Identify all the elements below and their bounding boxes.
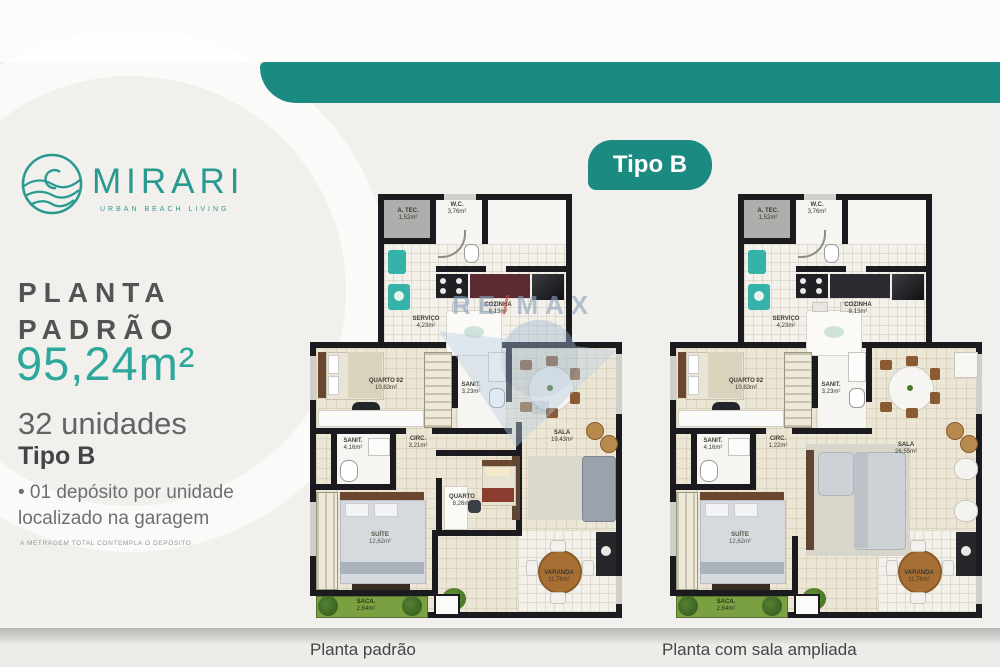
- stool: [812, 302, 828, 312]
- armchair: [954, 500, 978, 522]
- room-label-suite: SUÍTE12,62m²: [354, 532, 406, 546]
- washer-door: [754, 291, 764, 301]
- washer-door: [394, 291, 404, 301]
- units-count: 32 unidades: [18, 406, 187, 442]
- desk: [678, 410, 784, 427]
- room-label-sacada: SACA.2,64m²: [704, 599, 748, 613]
- floorplan-ampliada: A. TEC.1,52m² W.C.3,76m² SERVIÇO4,23m² C…: [666, 194, 1000, 632]
- wall: [310, 342, 446, 348]
- room-label-sanit2: SANIT.4,16m²: [696, 438, 730, 452]
- bed-headboard: [340, 492, 424, 500]
- armchair: [954, 458, 978, 480]
- chair: [906, 408, 918, 418]
- brand-tagline: URBAN BEACH LIVING: [100, 206, 229, 213]
- centerpiece: [907, 385, 913, 391]
- table-platter: [824, 326, 844, 338]
- kitchen-counter: [830, 274, 890, 298]
- plant: [402, 596, 422, 616]
- desk: [318, 410, 424, 427]
- vanity: [728, 438, 750, 456]
- wall: [738, 238, 796, 244]
- bbq-sink: [961, 546, 971, 556]
- tipo-b-badge-label: Tipo B: [613, 151, 687, 179]
- watermark-re: RE: [452, 290, 502, 320]
- room-label-atec: A. TEC.1,52m²: [742, 208, 794, 222]
- window: [616, 576, 622, 604]
- wall: [926, 194, 932, 348]
- burner: [800, 288, 806, 294]
- chair: [910, 592, 926, 604]
- wall: [750, 434, 756, 490]
- window: [804, 194, 836, 200]
- wall: [390, 434, 396, 490]
- burner: [800, 278, 806, 284]
- wall: [842, 194, 848, 244]
- wall: [866, 342, 872, 402]
- pillow: [345, 503, 369, 517]
- pillow: [486, 468, 510, 476]
- bed-runner: [700, 562, 784, 574]
- wall: [812, 348, 818, 408]
- burner: [816, 278, 822, 284]
- wall: [506, 266, 566, 272]
- teal-header-band: [260, 62, 1000, 103]
- window: [444, 194, 476, 200]
- burner: [816, 288, 822, 294]
- bed-bench: [712, 584, 770, 590]
- deposit-note-line1: • 01 depósito por unidade: [18, 482, 234, 503]
- wall: [926, 342, 982, 348]
- door-step: [434, 594, 460, 616]
- wall: [796, 266, 846, 272]
- bed-runner: [340, 562, 424, 574]
- sofa-chaise: [818, 452, 854, 496]
- remax-balloon-watermark: [438, 316, 633, 451]
- bed-bench: [352, 584, 410, 590]
- chair: [880, 402, 892, 412]
- pillow: [328, 376, 339, 395]
- plant: [318, 596, 338, 616]
- bed-blanket: [482, 488, 514, 502]
- room-label-varanda: VARANDA11,76m²: [894, 570, 944, 584]
- window: [670, 356, 676, 400]
- pillow: [374, 503, 398, 517]
- vanity: [368, 438, 390, 456]
- wall: [432, 536, 438, 596]
- bed-headboard: [678, 352, 686, 398]
- sideboard: [954, 352, 978, 378]
- burner: [440, 288, 446, 294]
- wall: [670, 484, 756, 490]
- door-step: [794, 594, 820, 616]
- toilet: [849, 388, 865, 408]
- chair: [880, 360, 892, 370]
- mirari-logo-icon: [20, 152, 84, 216]
- panel-title-line1: PLANTA: [18, 277, 171, 308]
- window: [976, 576, 982, 604]
- laundry-sink: [388, 250, 406, 274]
- wall: [432, 530, 522, 536]
- wardrobe: [316, 492, 338, 590]
- wall: [436, 266, 486, 272]
- chair: [930, 368, 940, 380]
- chair: [910, 540, 926, 552]
- wall: [378, 238, 436, 244]
- chair: [930, 392, 940, 404]
- vanity: [848, 352, 866, 382]
- room-label-servico: SERVIÇO4,23m²: [758, 316, 814, 330]
- wall: [482, 194, 488, 244]
- chair: [550, 540, 566, 552]
- room-label-varanda: VARANDA11,76m²: [534, 570, 584, 584]
- sofa-back: [854, 452, 868, 548]
- room-label-circ: CIRC.3,21m²: [398, 436, 438, 450]
- caption-planta-padrao: Planta padrão: [310, 640, 416, 660]
- wall: [436, 478, 442, 536]
- window: [310, 356, 316, 400]
- wall: [310, 484, 396, 490]
- pouf: [960, 435, 978, 453]
- wall: [670, 342, 806, 348]
- wardrobe: [784, 352, 812, 428]
- burner: [440, 278, 446, 284]
- deposit-note: • 01 depósito por unidade localizado na …: [18, 480, 234, 531]
- pillow: [705, 503, 729, 517]
- toilet: [464, 244, 479, 263]
- pillow: [688, 355, 699, 374]
- tipo-b-badge: Tipo B: [588, 140, 712, 190]
- room-label-quarto02: QUARTO 0210,63m²: [354, 378, 418, 392]
- bed-headboard: [318, 352, 326, 398]
- wood-panel: [806, 450, 814, 550]
- room-label-sacada: SACA.2,64m²: [344, 599, 388, 613]
- room-label-quarto: QUARTO8,26m²: [444, 494, 480, 508]
- pillow: [328, 355, 339, 374]
- plant: [762, 596, 782, 616]
- deposit-note-line2: localizado na garagem: [18, 508, 209, 529]
- laundry-sink: [748, 250, 766, 274]
- pillow: [688, 376, 699, 395]
- burner: [456, 278, 462, 284]
- room-label-circ: CIRC.1,22m²: [758, 436, 798, 450]
- wardrobe: [676, 492, 698, 590]
- waves-circle-icon: [20, 152, 84, 216]
- watermark-slash: /: [502, 290, 516, 320]
- chair: [550, 592, 566, 604]
- toilet: [700, 460, 718, 482]
- room-label-wc: W.C.3,76m²: [794, 202, 840, 216]
- watermark-max: MAX: [516, 290, 595, 320]
- brand-name: MIRARI: [92, 162, 245, 202]
- total-area-value: 95,24m²: [16, 336, 195, 391]
- caption-planta-ampliada: Planta com sala ampliada: [662, 640, 857, 660]
- wall: [866, 266, 926, 272]
- chair: [906, 356, 918, 366]
- fridge: [892, 274, 924, 300]
- pillow: [734, 503, 758, 517]
- wall: [792, 428, 872, 434]
- footnote: A METRAGEM TOTAL CONTEMPLA O DEPÓSITO: [20, 540, 191, 547]
- room-label-sala: SALA26,55m²: [882, 442, 930, 456]
- plant: [678, 596, 698, 616]
- room-label-sanit1: SANIT.3,23m²: [816, 382, 846, 396]
- room-label-quarto02: QUARTO 0210,63m²: [714, 378, 778, 392]
- toilet: [340, 460, 358, 482]
- sofa: [582, 456, 616, 522]
- room-label-sanit2: SANIT.4,16m²: [336, 438, 370, 452]
- type-label: Tipo B: [18, 442, 95, 471]
- bbq-sink: [601, 546, 611, 556]
- room-label-cozinha: COZINHA8,13m²: [828, 302, 888, 316]
- wall: [792, 536, 798, 596]
- remax-watermark: RE/MAX: [452, 290, 595, 321]
- bed-headboard: [700, 492, 784, 500]
- room-label-atec: A. TEC.1,52m²: [382, 208, 434, 222]
- toilet: [824, 244, 839, 263]
- room-label-suite: SUÍTE12,62m²: [714, 532, 766, 546]
- room-label-wc: W.C.3,76m²: [434, 202, 480, 216]
